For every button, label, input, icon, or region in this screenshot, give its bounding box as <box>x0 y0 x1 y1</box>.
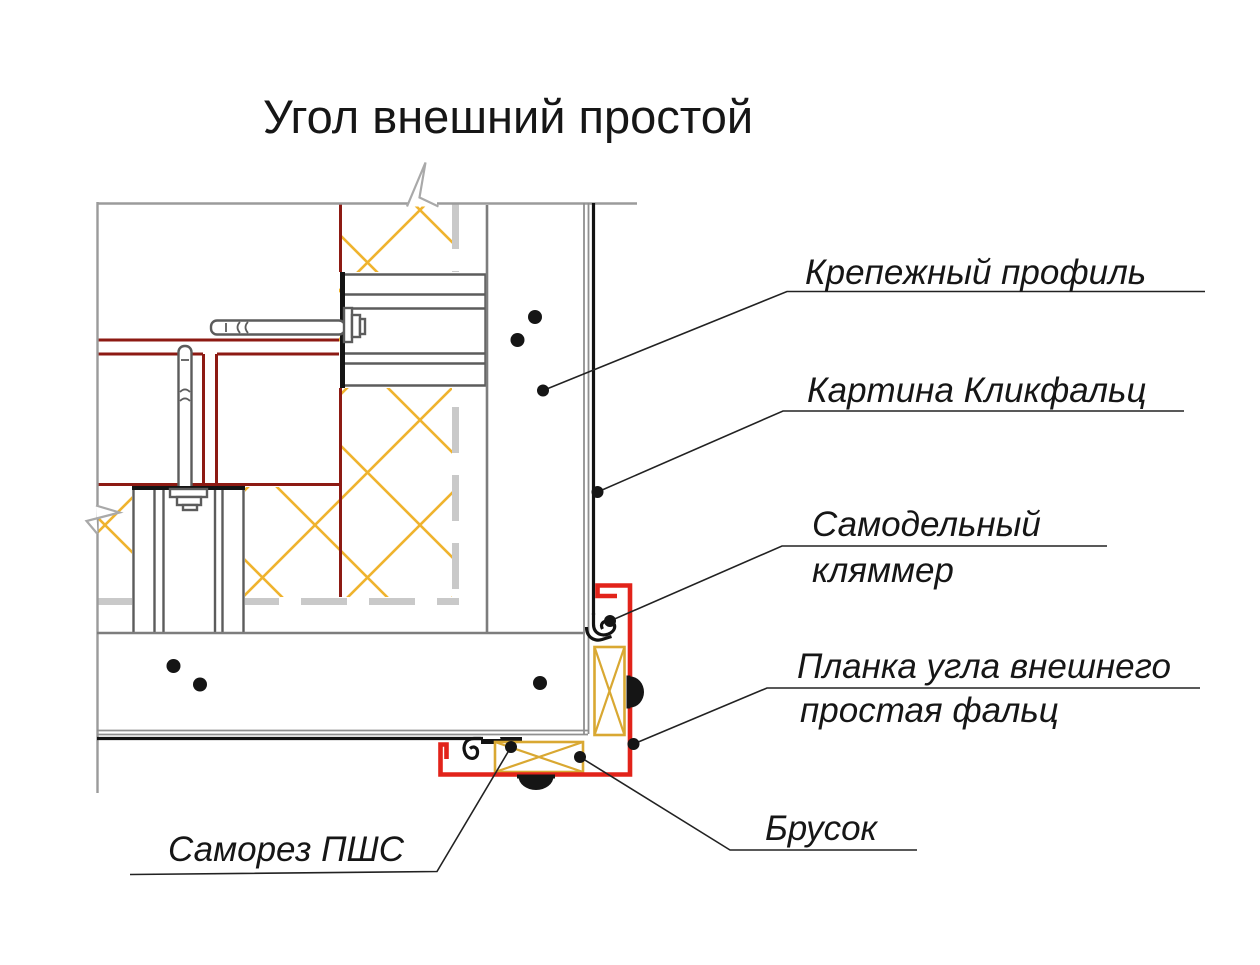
label-klikfalz-sheet: Картина Кликфальц <box>807 371 1146 410</box>
klikfalz-sheet-bottom <box>97 737 522 758</box>
diagram-page: Угол внешний простой <box>0 0 1260 965</box>
leader-dot-homemade-clamp <box>604 615 616 627</box>
label-corner-flashing-line1: Планка угла внешнего <box>797 647 1171 686</box>
leader-klikfalz-sheet <box>598 411 1185 492</box>
page-title: Угол внешний простой <box>263 90 753 143</box>
fastening-profile-bracket-bottom <box>132 489 245 632</box>
screw-bottom <box>517 775 555 791</box>
seam-fold-bottom <box>464 739 483 759</box>
callout-klikfalz-sheet: Картина Кликфальц <box>592 371 1185 498</box>
callout-homemade-clamp: Самодельный кляммер <box>604 505 1107 627</box>
anchor-bolt-vertical <box>179 346 192 492</box>
callout-timber-block: Брусок <box>574 751 917 850</box>
label-fastening-profile: Крепежный профиль <box>805 253 1146 292</box>
leader-dot-self-tapping-screw <box>505 741 517 753</box>
insulation-vertical-band <box>339 203 452 597</box>
leader-dot-klikfalz-sheet <box>592 486 604 498</box>
break-mark-top <box>407 163 439 207</box>
fastening-profile-bracket-right <box>211 272 486 388</box>
corner-detail-drawing: Угол внешний простой <box>0 0 1260 965</box>
timber-block-vertical <box>595 647 625 735</box>
label-corner-flashing-line2: простая фальц <box>800 691 1059 730</box>
callout-corner-flashing: Планка угла внешнего простая фальц <box>628 647 1201 750</box>
label-homemade-clamp-line2: кляммер <box>812 551 954 590</box>
leader-dot-fastening-profile <box>537 385 549 397</box>
callout-self-tapping-screw: Саморез ПШС <box>130 741 517 875</box>
screw-right <box>627 676 645 709</box>
label-timber-block: Брусок <box>765 809 879 848</box>
leader-dot-timber-block <box>574 751 586 763</box>
wall-face-mounts <box>132 272 343 489</box>
label-self-tapping-screw: Саморез ПШС <box>168 830 405 869</box>
leader-dot-corner-flashing <box>628 738 640 750</box>
label-homemade-clamp-line1: Самодельный <box>812 505 1041 544</box>
